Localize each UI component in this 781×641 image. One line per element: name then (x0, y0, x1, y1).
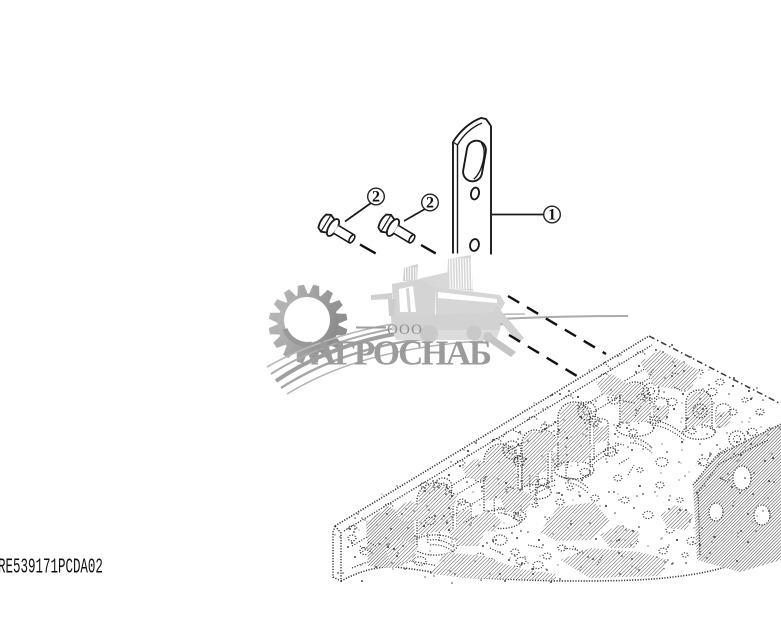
svg-text:RE539171PCDA02: RE539171PCDA02 (0, 557, 103, 580)
svg-text:2: 2 (426, 195, 434, 212)
svg-text:2: 2 (372, 189, 380, 206)
svg-text:1: 1 (548, 207, 556, 224)
svg-text:АГРОСНАБ: АГРОСНАБ (311, 334, 492, 373)
